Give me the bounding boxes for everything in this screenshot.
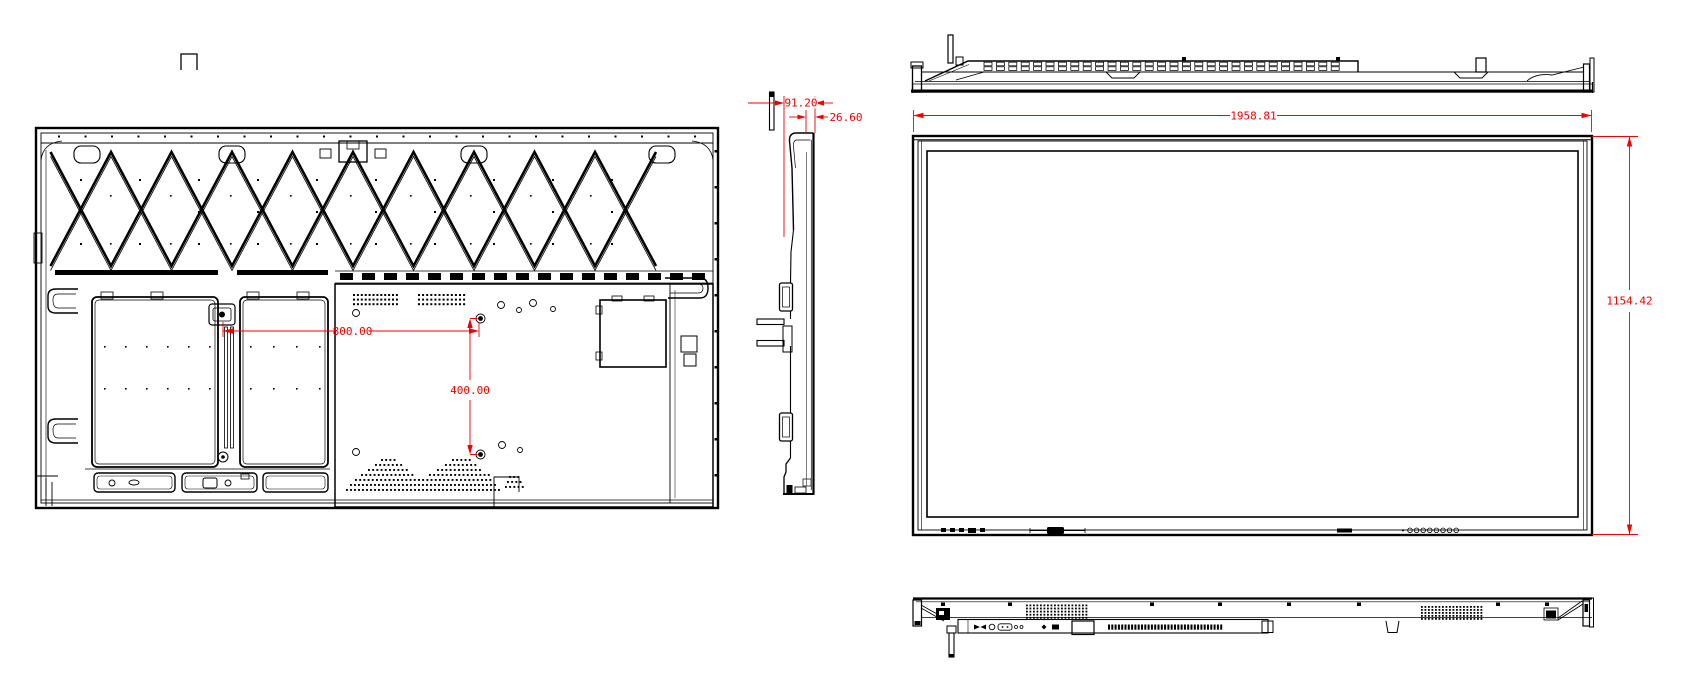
front-light-sensor xyxy=(1337,529,1352,533)
front-outer-frame xyxy=(913,136,1592,535)
front-ir-sensor xyxy=(1047,527,1064,534)
top-vent-rail xyxy=(925,61,1358,81)
rear-outer-frame xyxy=(36,128,718,508)
top-antenna xyxy=(948,35,963,65)
vga-port-icon xyxy=(998,624,1012,630)
vent-hole-grid xyxy=(353,294,398,305)
electronics-box xyxy=(600,300,666,367)
port-icons xyxy=(974,624,1059,630)
vent-hole-grid xyxy=(418,294,465,305)
dim-vesa-height: 400.00 xyxy=(450,319,490,455)
top-base-edge xyxy=(911,90,1593,93)
front-bezel xyxy=(918,141,1587,530)
bottom-vent-slots xyxy=(1108,625,1222,630)
dim-overall-height: 1154.42 xyxy=(1592,137,1653,535)
audio-jack-icon xyxy=(989,624,995,630)
bottom-right-endcap xyxy=(1583,600,1590,626)
drawing-canvas: 800.00 400.00 91.20 26 xyxy=(0,0,1682,678)
rear-vesa-plate xyxy=(209,150,718,507)
top-view xyxy=(911,35,1594,93)
front-screen xyxy=(927,151,1578,517)
rear-left-panels xyxy=(85,292,330,469)
technical-drawing: 800.00 400.00 91.20 26 xyxy=(0,0,1682,678)
top-right-endcap xyxy=(1584,64,1590,92)
bottom-connector-strip xyxy=(958,620,1268,635)
dim-vesa-width: 800.00 xyxy=(223,322,479,338)
detail-symbol xyxy=(181,54,197,70)
dim-depth-front: 26.60 xyxy=(789,110,863,133)
dim-label-depth-overall: 91.20 xyxy=(784,97,817,110)
vesa-hole-top-left xyxy=(209,304,235,325)
top-tab xyxy=(1476,58,1486,72)
dim-label-overall-height: 1154.42 xyxy=(1606,295,1652,308)
bottom-view xyxy=(913,598,1594,657)
side-view xyxy=(757,92,815,494)
dim-label-vesa-height: 400.00 xyxy=(450,384,490,397)
dimension-annotations: 800.00 400.00 91.20 26 xyxy=(223,96,1653,535)
bottom-foot xyxy=(1386,621,1399,633)
dim-label-vesa-width: 800.00 xyxy=(333,325,373,338)
dim-overall-width: 1958.81 xyxy=(914,110,1592,133)
rear-rail-dashes xyxy=(340,273,705,280)
side-antenna xyxy=(770,92,775,130)
front-view xyxy=(913,136,1592,535)
front-bezel-controls xyxy=(941,527,1458,534)
top-vent-slots xyxy=(984,62,1339,70)
dim-label-depth-front: 26.60 xyxy=(829,111,862,124)
perforation-wave-pattern xyxy=(346,459,524,491)
usb-icon xyxy=(974,625,980,630)
bottom-mount-nubs xyxy=(941,603,1549,607)
rear-truss-lattice xyxy=(51,141,676,271)
rear-speaker-boxes xyxy=(94,473,328,492)
bottom-antenna xyxy=(947,626,956,657)
wall-hook xyxy=(757,319,784,325)
dim-label-overall-width: 1958.81 xyxy=(1230,110,1276,123)
bottom-vent-grid xyxy=(1026,605,1087,619)
rear-view xyxy=(34,54,718,508)
rear-frame-rivets xyxy=(58,136,696,138)
wall-hook xyxy=(757,341,784,347)
